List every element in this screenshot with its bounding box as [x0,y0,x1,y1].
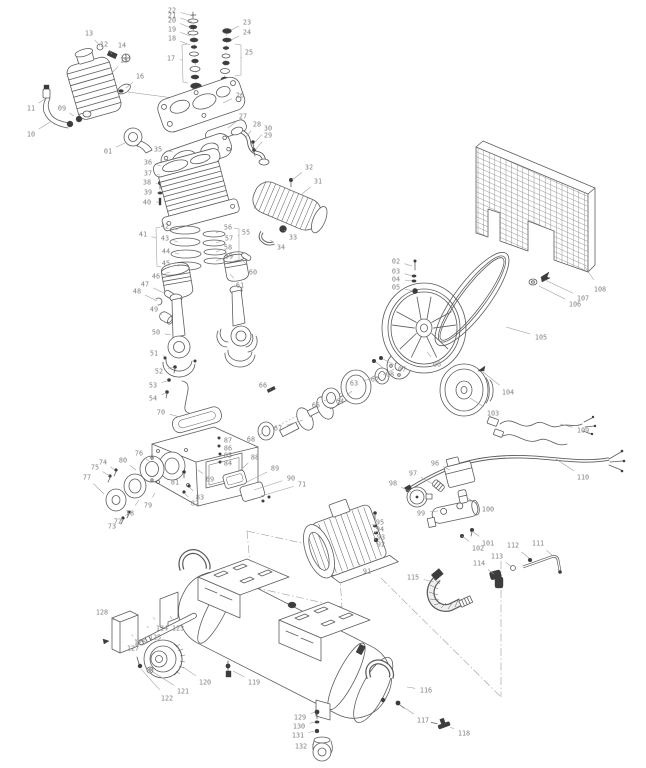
callout-37: 37 [144,169,152,177]
callout-130: 130 [293,722,305,730]
callout-129: 129 [294,713,306,721]
callout-51: 51 [150,349,158,357]
valve-stack-left [188,12,202,98]
callout-66: 66 [259,381,267,389]
callout-30: 30 [264,124,272,132]
callout-58: 58 [224,243,232,251]
bearing-rod-piece [124,128,152,153]
callout-69: 69 [206,475,214,483]
leader-line-125 [147,626,149,628]
callout-01: 01 [104,147,112,155]
hub-bolts [372,356,383,363]
callout-40: 40 [143,198,151,206]
leader-line-120 [183,667,196,676]
drain-cock [431,717,450,731]
bracket-41 [156,227,161,267]
callout-125: 125 [149,633,161,641]
callout-45: 45 [162,259,170,267]
callout-54: 54 [149,394,157,402]
leader-line-129 [310,712,315,714]
callout-78: 78 [126,509,134,517]
callout-44: 44 [162,247,170,255]
callout-10: 10 [27,130,35,138]
connecting-rod-first [163,294,197,377]
callout-42: 42 [161,222,169,230]
callout-103: 103 [487,409,499,417]
exploded-parts-diagram: 0102030405060708091011121314151617181920… [0,0,646,768]
motor-pulley [440,364,493,416]
callout-121: 121 [177,687,189,695]
callout-67: 67 [274,424,282,432]
leader-line-22 [181,13,193,17]
callout-87: 87 [224,436,232,444]
callout-50: 50 [152,328,160,336]
callout-35: 35 [154,145,162,153]
callout-65: 65 [312,401,320,409]
leader-line-108 [585,267,594,280]
callout-79: 79 [144,501,152,509]
callout-122: 122 [161,694,173,702]
callout-131: 131 [292,731,304,739]
rod-hardware [165,365,189,413]
callout-86: 86 [224,444,232,452]
callout-23: 23 [243,18,251,26]
callout-84: 84 [224,459,232,467]
callout-73: 73 [108,522,116,530]
leader-line-77 [93,483,104,494]
leader-line-101 [472,531,479,536]
callout-92: 92 [377,540,385,548]
callout-41: 41 [139,230,147,238]
callout-53: 53 [149,381,157,389]
callout-46: 46 [152,272,160,280]
callout-47: 47 [141,280,149,288]
callout-77: 77 [83,473,91,481]
connecting-rod-second [225,286,255,367]
callout-03: 03 [392,267,400,275]
callout-112: 112 [507,541,519,549]
callout-88: 88 [251,453,259,461]
pin-clip [156,298,162,305]
leader-line-23 [231,26,239,30]
manifold-screws [460,528,474,538]
leader-line-24 [231,36,239,40]
leader-line-80 [130,466,136,471]
callout-64: 64 [336,397,344,405]
callout-118: 118 [458,729,470,737]
tank-handle-left [181,552,208,570]
caster-wheel [313,737,332,761]
manifold-nipple [458,489,469,503]
callout-107: 107 [577,294,589,302]
callout-109: 109 [577,426,589,434]
leader-line-111 [546,550,553,556]
callout-09: 09 [58,104,66,112]
tank-fitting [226,661,231,677]
callout-110: 110 [577,473,589,481]
callout-33: 33 [289,233,297,241]
callout-90: 90 [287,474,295,482]
callout-22: 22 [168,6,176,14]
shaft-key [267,386,275,392]
callout-119: 119 [248,678,260,686]
leader-line-74 [111,467,116,470]
callout-132: 132 [295,742,307,750]
callout-98: 98 [389,479,397,487]
leader-line-119 [233,671,244,677]
leader-line-41 [152,237,156,238]
leader-line-29 [255,142,262,150]
callout-70: 70 [157,408,165,416]
callout-113: 113 [491,552,503,560]
leader-line-03 [405,274,412,276]
bracket-25 [235,44,241,76]
leader-line-53 [162,381,167,383]
leader-line-116 [407,687,415,688]
callout-38: 38 [143,178,151,186]
leader-line-131 [309,731,315,733]
leader-line-01 [116,142,127,147]
callout-31: 31 [314,177,322,185]
callout-74: 74 [99,458,107,466]
callout-56: 56 [224,223,232,231]
callout-61: 61 [236,281,244,289]
callout-62: 62 [371,375,379,383]
callout-120: 120 [199,678,211,686]
callout-29: 29 [264,131,272,139]
leader-line-48 [145,295,157,301]
leader-line-30 [254,135,262,143]
leader-line-117 [400,705,414,714]
callout-128: 128 [96,608,108,616]
caster-hardware [315,710,320,733]
air-filter [62,43,132,121]
callout-07: 07 [398,365,406,373]
leader-line-43 [174,241,178,242]
callout-39: 39 [144,188,152,196]
outlet-manifold [427,499,480,527]
leader-line-58 [216,251,220,253]
leader-line-54 [161,393,166,395]
leader-line-31 [302,187,311,194]
callout-02: 02 [392,257,400,265]
callout-115: 115 [407,573,419,581]
leader-line-09 [70,113,75,116]
callout-116: 116 [420,686,432,694]
callout-94: 94 [376,525,384,533]
callout-127: 127 [127,644,139,652]
leader-line-78 [135,500,139,506]
guard-screw [529,272,550,285]
leader-line-70 [170,414,180,417]
callout-52: 52 [155,367,163,375]
callout-93: 93 [377,533,385,541]
callout-25: 25 [245,48,253,56]
bearing-cover-set [106,456,164,524]
callout-68: 68 [247,435,255,443]
callout-60: 60 [249,268,257,276]
leader-line-130 [310,722,315,723]
callout-99: 99 [417,509,425,517]
oil-seal [258,422,274,440]
discharge-pipe [511,556,562,573]
leader-line-50 [165,334,171,335]
leader-line-59 [216,259,221,261]
callout-83: 83 [196,493,204,501]
leader-line-47 [153,288,164,293]
callout-11: 11 [27,104,35,112]
callout-27: 27 [239,112,247,120]
leader-line-71 [261,487,293,497]
callout-14: 14 [118,41,126,49]
callout-15: 15 [120,56,128,64]
callout-104: 104 [502,388,514,396]
diagram-canvas: 0102030405060708091011121314151617181920… [0,0,646,768]
leader-line-57 [216,241,221,243]
callout-43: 43 [161,234,169,242]
callout-06: 06 [433,360,441,368]
leader-line-79 [153,493,156,497]
callout-48: 48 [133,287,141,295]
callout-16: 16 [136,72,144,80]
callout-75: 75 [91,463,99,471]
callout-13: 13 [85,29,93,37]
callout-36: 36 [144,158,152,166]
callout-49: 49 [150,305,158,313]
callout-57: 57 [225,234,233,242]
callout-28: 28 [253,120,261,128]
leader-line-113 [506,563,512,568]
callout-95: 95 [376,518,384,526]
callout-102: 102 [472,544,484,552]
callout-04: 04 [392,275,400,283]
callout-100: 100 [482,505,494,513]
switch-fitting [431,479,445,492]
callout-08: 08 [386,370,394,378]
construction-line [381,578,501,697]
callout-117: 117 [417,716,429,724]
callout-80: 80 [119,456,127,464]
bracket-17 [182,44,188,83]
callout-34: 34 [277,243,285,251]
callout-32: 32 [305,163,313,171]
callout-114: 114 [473,559,485,567]
leader-line-102 [462,536,469,541]
callout-124: 124 [156,624,168,632]
callout-26: 26 [236,91,244,99]
leader-line-04 [405,280,412,281]
leader-line-112 [522,552,530,558]
ring-set-second [203,231,226,264]
callout-91: 91 [363,567,371,575]
callout-18: 18 [168,34,176,42]
callout-97: 97 [409,469,417,477]
callout-108: 108 [594,285,606,293]
callout-85: 85 [224,451,232,459]
callout-89: 89 [271,464,279,472]
flywheel [382,283,466,373]
callout-19: 19 [168,25,176,33]
callout-12: 12 [100,40,108,48]
pressure-switch [442,454,475,488]
callout-76: 76 [135,449,143,457]
leader-line-75 [103,472,110,476]
callout-105: 105 [535,333,547,341]
callout-63: 63 [350,379,358,387]
callout-111: 111 [532,539,544,547]
leader-line-124 [153,617,155,620]
callout-55: 55 [242,228,250,236]
leader-line-02 [405,264,412,266]
pressure-gauge [407,487,432,507]
flex-hose [429,568,473,609]
callout-96: 96 [431,459,439,467]
callout-24: 24 [243,28,251,36]
leader-line-10 [39,122,50,129]
callout-123: 123 [172,624,184,632]
leader-line-105 [506,327,530,334]
callout-05: 05 [392,283,400,291]
callout-17: 17 [167,54,175,62]
leader-line-118 [450,727,454,729]
leader-line-44 [175,253,179,254]
leader-line-08 [376,362,383,368]
callout-71: 71 [298,480,306,488]
callout-59: 59 [225,252,233,260]
leader-line-32 [292,173,302,181]
callout-81: 81 [171,478,179,486]
